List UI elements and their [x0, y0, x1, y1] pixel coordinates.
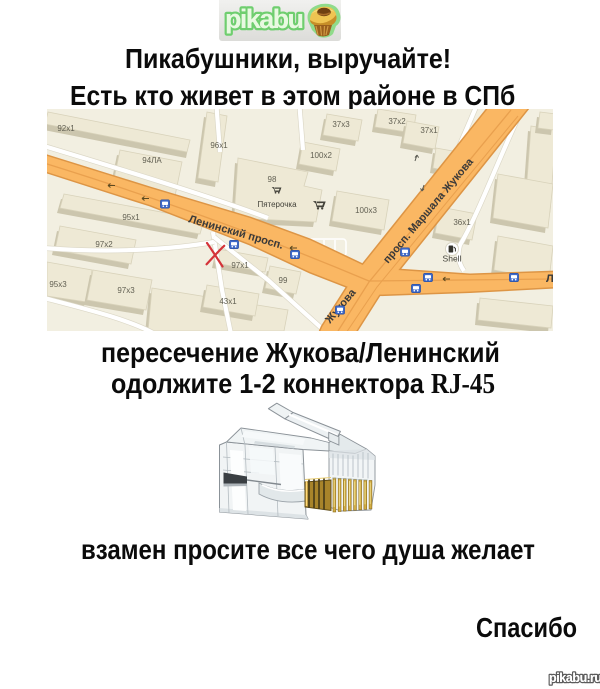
svg-text:Shell: Shell	[443, 254, 462, 264]
svg-text:97х1: 97х1	[231, 261, 249, 270]
svg-text:Пятерочка: Пятерочка	[257, 200, 297, 209]
svg-text:37х1: 37х1	[420, 126, 438, 135]
svg-text:36х1: 36х1	[453, 218, 471, 227]
svg-text:37х3: 37х3	[332, 120, 350, 129]
svg-text:pikabu.ru: pikabu.ru	[549, 671, 600, 685]
svg-text:95х3: 95х3	[49, 280, 67, 289]
svg-text:92х1: 92х1	[57, 124, 75, 133]
svg-text:pikabu: pikabu	[225, 4, 303, 34]
svg-text:99: 99	[279, 276, 288, 285]
svg-text:98: 98	[268, 175, 277, 184]
svg-text:37х2: 37х2	[388, 117, 406, 126]
svg-text:95х1: 95х1	[122, 213, 140, 222]
svg-text:100х2: 100х2	[310, 151, 332, 160]
svg-text:97х3: 97х3	[117, 286, 135, 295]
svg-text:Л: Л	[546, 273, 553, 285]
svg-text:94ЛА: 94ЛА	[142, 156, 162, 165]
svg-text:100х3: 100х3	[355, 206, 377, 215]
svg-text:97х2: 97х2	[95, 240, 113, 249]
svg-text:43х1: 43х1	[219, 297, 237, 306]
svg-text:96х1: 96х1	[210, 141, 228, 150]
